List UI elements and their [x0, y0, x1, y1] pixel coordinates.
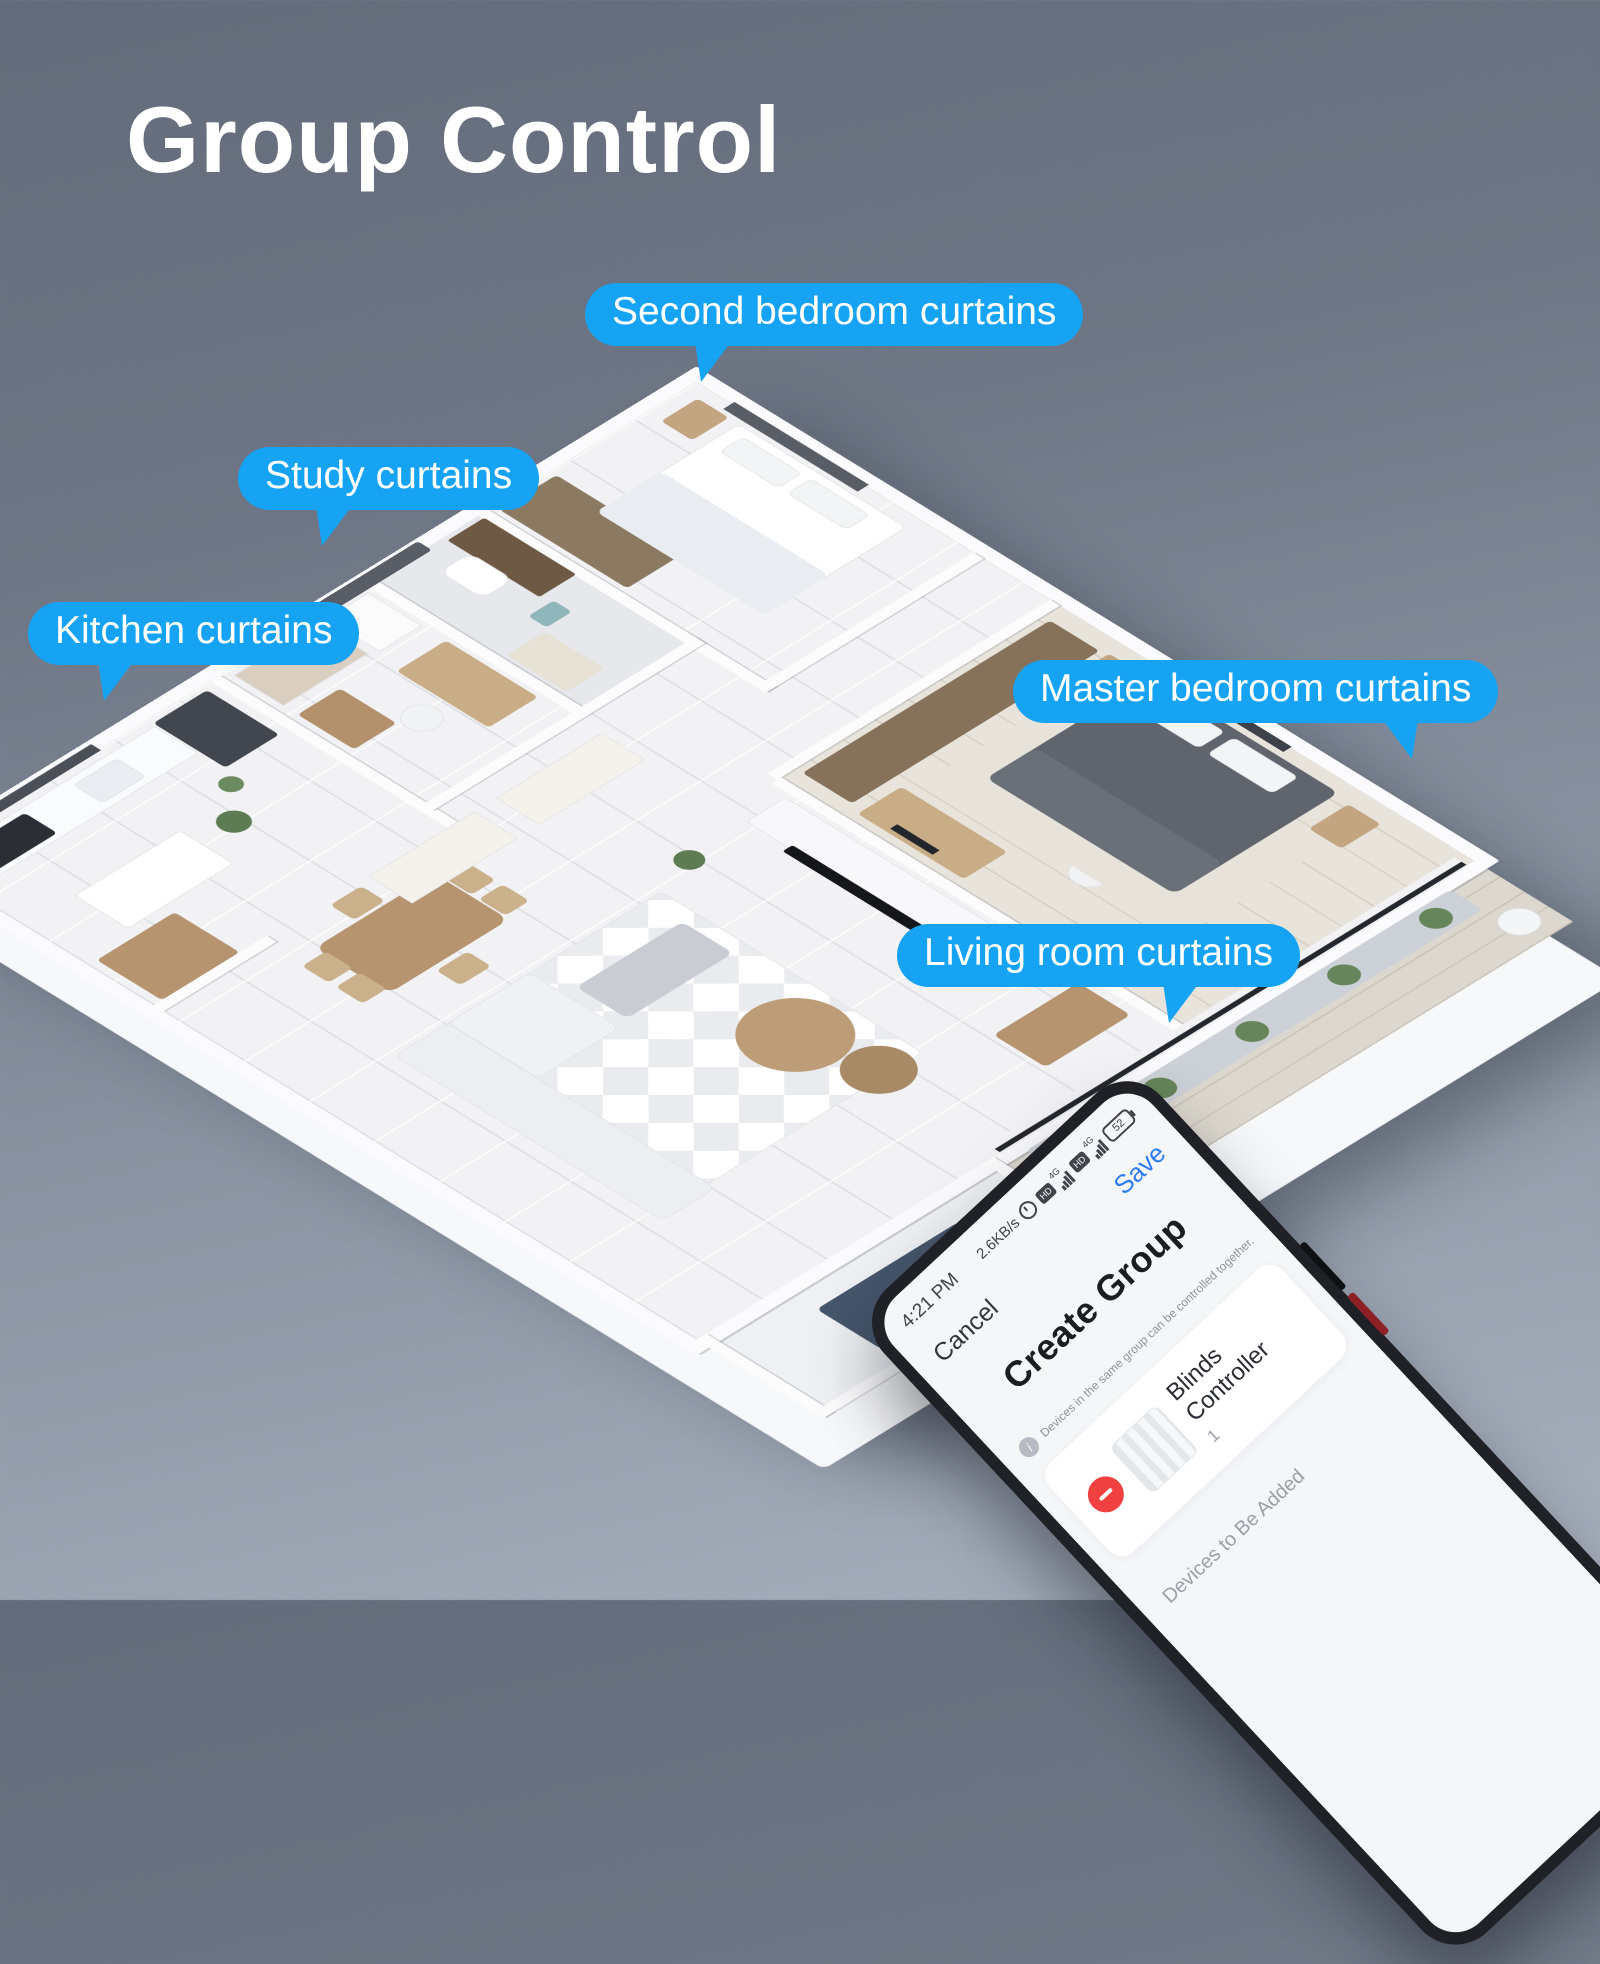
callout-label: Kitchen curtains [55, 609, 332, 654]
callout-second-bedroom-curtains: Second bedroom curtains [585, 283, 1083, 346]
callout-tail-icon [695, 342, 731, 382]
callout-label: Master bedroom curtains [1040, 667, 1471, 712]
callout-study-curtains: Study curtains [238, 447, 539, 510]
callout-tail-icon [1382, 719, 1418, 759]
phone-screen: 4:21 PM 2.6KB/s HD 4G HD 4G 52 Cancel Sa… [870, 1079, 1600, 1946]
callout-living-room-curtains: Living room curtains [897, 924, 1300, 987]
callout-label: Second bedroom curtains [612, 290, 1056, 335]
callout-tail-icon [1163, 983, 1199, 1023]
callout-tail-icon [316, 506, 352, 546]
save-button[interactable]: Save [1108, 1138, 1172, 1201]
callout-kitchen-curtains: Kitchen curtains [28, 602, 359, 665]
callout-master-bedroom-curtains: Master bedroom curtains [1013, 660, 1498, 723]
callout-label: Study curtains [265, 454, 512, 499]
remove-device-button[interactable] [1080, 1469, 1131, 1520]
scene: Group Control Second bedroom curtains St… [0, 0, 1600, 1600]
blinds-thumbnail [1109, 1404, 1199, 1494]
floorplan [0, 382, 1600, 1418]
callout-tail-icon [98, 661, 134, 701]
page-title: Group Control [126, 86, 781, 194]
info-icon: i [1015, 1433, 1043, 1461]
callout-label: Living room curtains [924, 931, 1273, 976]
